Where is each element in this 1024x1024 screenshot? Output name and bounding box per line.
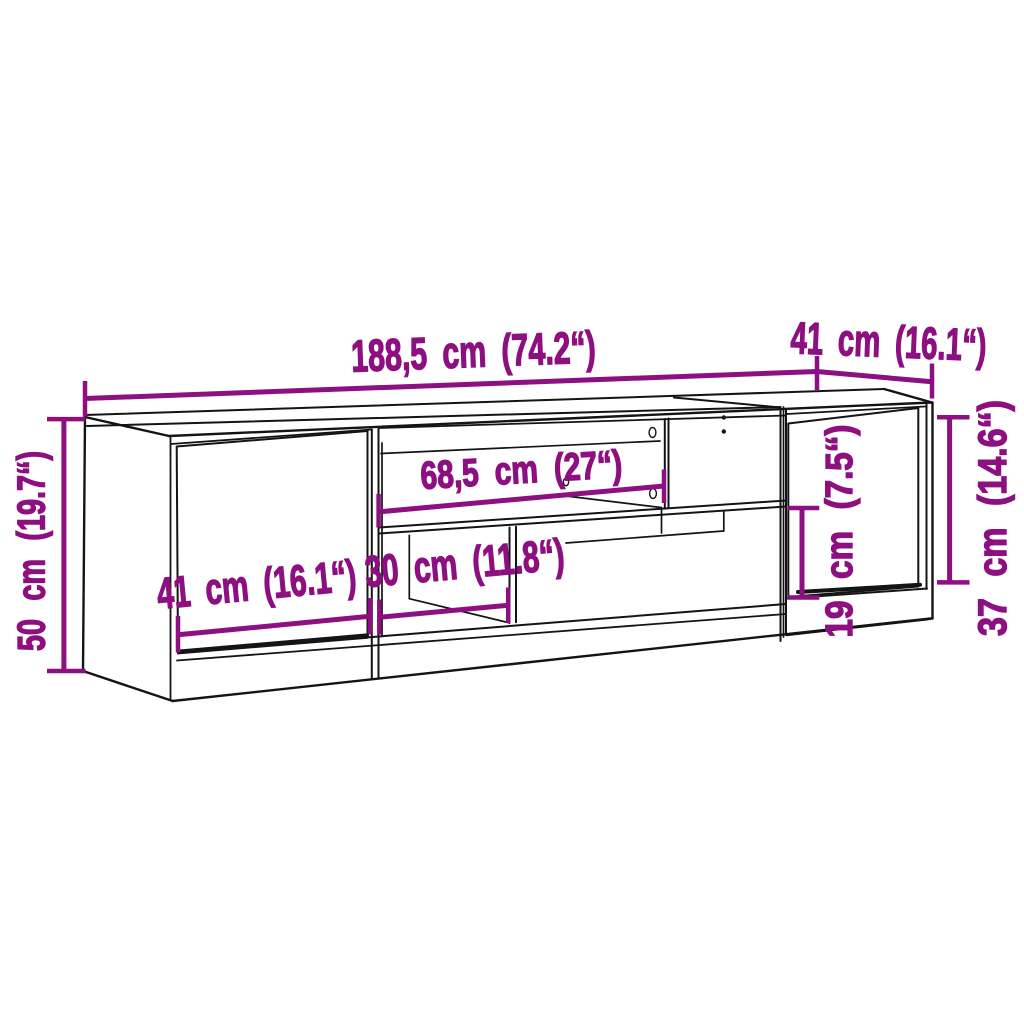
- svg-text:50 cm (19.7“): 50 cm (19.7“): [10, 451, 53, 651]
- svg-text:41 cm (16.1“): 41 cm (16.1“): [155, 551, 359, 619]
- svg-text:19 cm (7.5“): 19 cm (7.5“): [818, 425, 861, 638]
- svg-text:41 cm (16.1“): 41 cm (16.1“): [790, 314, 988, 372]
- svg-text:37 cm (14.6“): 37 cm (14.6“): [969, 400, 1014, 636]
- svg-text:68,5 cm (27“): 68,5 cm (27“): [419, 443, 623, 498]
- svg-text:188,5 cm (74.2“): 188,5 cm (74.2“): [350, 322, 596, 382]
- svg-text:30 cm (11.8“): 30 cm (11.8“): [363, 529, 567, 596]
